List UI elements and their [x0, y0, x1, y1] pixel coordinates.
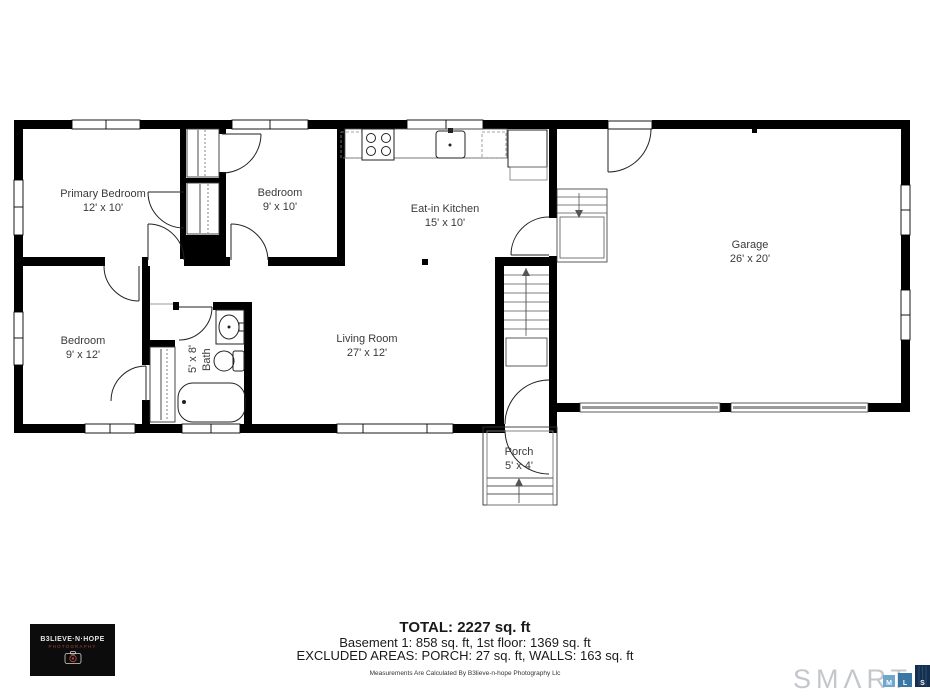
window-bottom-bedroom	[85, 424, 135, 433]
door-garage-service	[608, 129, 651, 172]
label-bedroom-9x10-dims: 9' x 10'	[263, 201, 297, 213]
window-top-primary	[72, 120, 140, 129]
toilet-icon	[214, 351, 244, 371]
mls-m-square: M	[883, 675, 895, 687]
stairs-down	[557, 189, 607, 262]
window-left-bedroom	[14, 312, 23, 365]
label-porch-name: Porch	[505, 446, 534, 458]
stairs-up-arrow-icon	[522, 268, 530, 330]
photographer-logo-sub: PHOTOGRAPHY	[48, 644, 96, 649]
door-primary-closet	[148, 192, 184, 228]
camera-icon	[64, 651, 82, 664]
label-bedroom-9x10-name: Bedroom	[258, 187, 303, 199]
vanity-sink-icon	[216, 310, 244, 344]
label-kitchen-dims: 15' x 10'	[425, 217, 465, 229]
door-bedroom-9x10-closet	[222, 134, 261, 173]
label-living-room-dims: 27' x 12'	[347, 347, 387, 359]
door-bath	[179, 307, 212, 340]
mls-s-square: S	[915, 665, 930, 687]
label-living-room-name: Living Room	[336, 333, 397, 345]
window-bottom-living	[337, 424, 453, 433]
garage-service-door-opening	[608, 121, 652, 129]
kitchen-fixtures	[341, 128, 547, 180]
porch-arrow-icon	[515, 478, 523, 503]
kitchen-sink-icon	[436, 128, 465, 158]
stove-icon	[362, 129, 394, 160]
label-bedroom-9x12-dims: 9' x 12'	[66, 349, 100, 361]
total-area-text: TOTAL: 2227 sq. ft	[0, 620, 930, 636]
bathtub-icon	[178, 383, 245, 422]
window-bottom-bath	[182, 424, 240, 433]
smart-mls-logo: SMΛRT M L S	[780, 660, 930, 696]
label-kitchen-name: Eat-in Kitchen	[411, 203, 479, 215]
label-primary-bedroom-dims: 12' x 10'	[83, 202, 123, 214]
mls-m-letter: M	[886, 680, 892, 687]
door-bedroom-9x12	[104, 266, 139, 301]
label-bath-name: Bath	[201, 348, 213, 371]
closet-primary-bedroom	[187, 183, 219, 234]
window-top-kitchen	[407, 120, 483, 129]
walls	[14, 120, 910, 433]
label-porch-dims: 5' x 4'	[505, 460, 533, 472]
closet-bedroom-9x10	[187, 129, 219, 177]
mls-l-letter: L	[903, 680, 908, 687]
label-bedroom-9x12-name: Bedroom	[61, 335, 106, 347]
mls-l-square: L	[898, 673, 912, 687]
stair-landing	[506, 338, 547, 366]
floor-plan-page: Primary Bedroom 12' x 10' Bedroom 9' x 1…	[0, 0, 930, 697]
window-left-primary	[14, 180, 23, 235]
label-garage-name: Garage	[732, 239, 769, 251]
mls-s-letter: S	[920, 680, 925, 687]
label-primary-bedroom-name: Primary Bedroom	[60, 188, 146, 200]
stairs-up	[504, 268, 549, 366]
door-kitchen-landing	[511, 217, 549, 255]
window-right-garage-lower	[901, 290, 910, 340]
door-bedroom-9x12-closet	[111, 366, 146, 401]
refrigerator-icon	[508, 130, 547, 180]
label-bath-dims: 5' x 8'	[187, 345, 199, 373]
photographer-logo-name: B3LIEVE·N·HOPE	[40, 636, 104, 643]
photographer-logo: B3LIEVE·N·HOPE PHOTOGRAPHY	[30, 624, 115, 676]
label-garage-dims: 26' x 20'	[730, 253, 770, 265]
cabinet-dashed-icon	[482, 132, 506, 158]
door-primary-bedroom	[148, 224, 184, 260]
door-bedroom-9x10	[231, 224, 268, 260]
closet-bedroom-9x12	[150, 347, 175, 422]
window-right-garage-upper	[901, 185, 910, 235]
window-top-bedroom	[232, 120, 308, 129]
floor-plan-drawing: Primary Bedroom 12' x 10' Bedroom 9' x 1…	[0, 0, 930, 697]
